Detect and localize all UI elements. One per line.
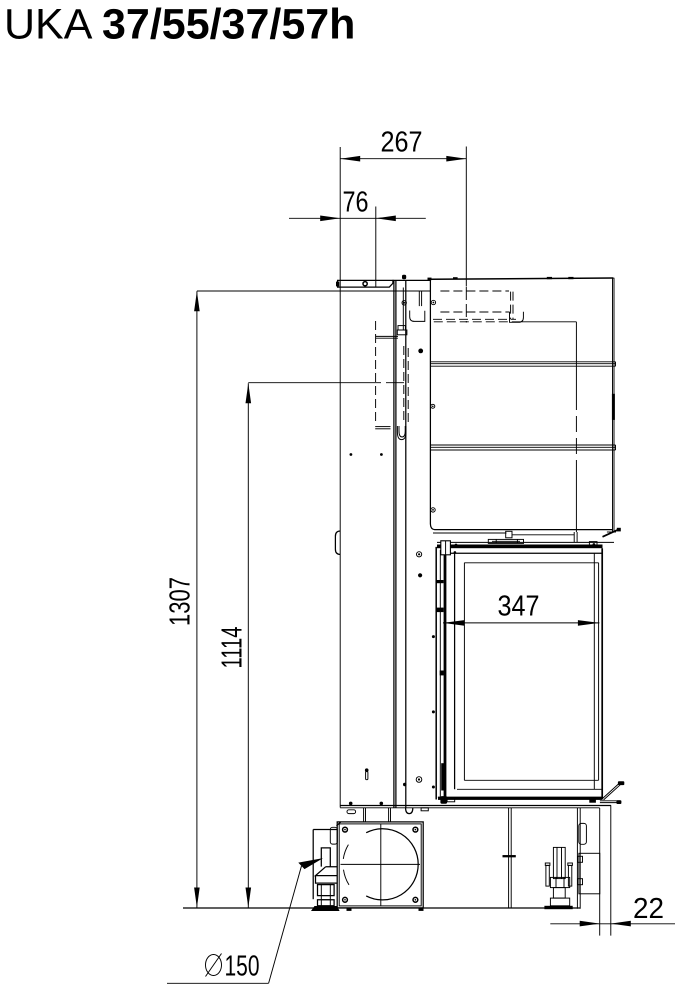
svg-text:150: 150 — [225, 951, 260, 983]
svg-text:1114: 1114 — [217, 627, 249, 669]
svg-text:267: 267 — [381, 127, 423, 159]
svg-text:347: 347 — [498, 591, 540, 623]
svg-text:22: 22 — [633, 893, 664, 925]
svg-text:76: 76 — [343, 187, 369, 219]
svg-text:UKA 37/55/37/57h: UKA 37/55/37/57h — [4, 1, 355, 49]
svg-text:1307: 1307 — [165, 577, 197, 626]
